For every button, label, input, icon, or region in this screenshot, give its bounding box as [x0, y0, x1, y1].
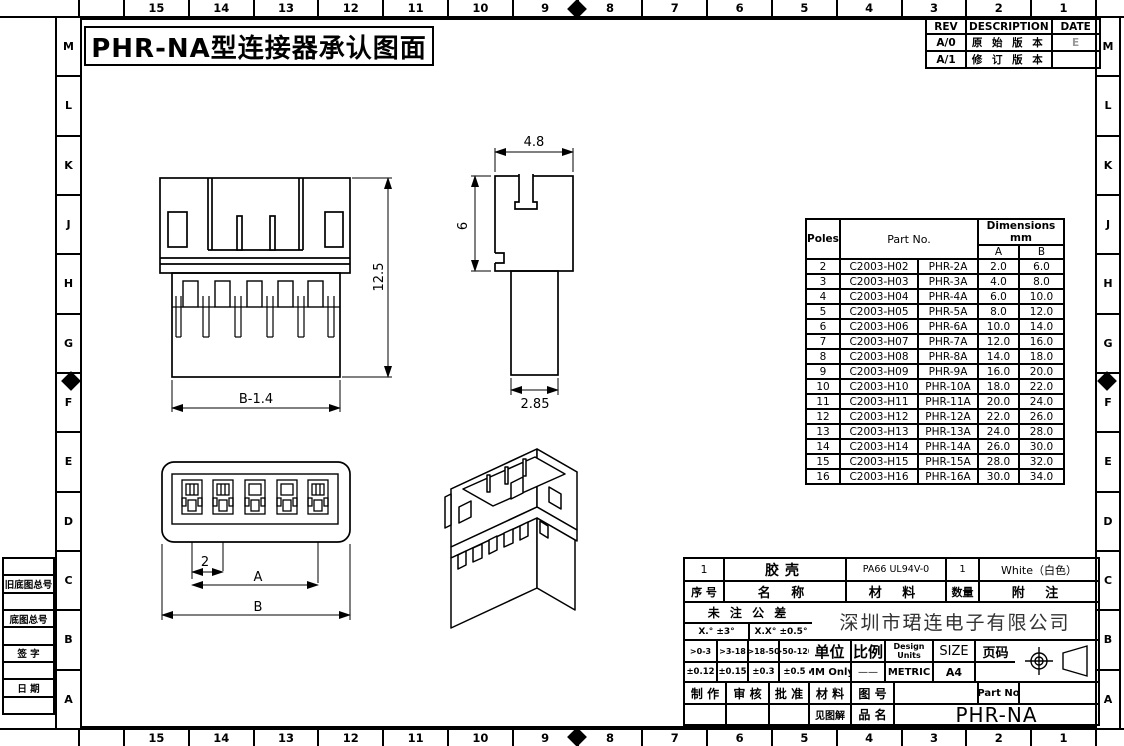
poles-cell: 12 — [806, 409, 840, 424]
projection-symbol-cell — [1015, 641, 1098, 681]
ruler-number: 3 — [903, 730, 968, 746]
margin-label — [4, 559, 53, 576]
dim-b-cell: 28.0 — [1019, 424, 1064, 439]
ruler-number: 14 — [190, 0, 255, 16]
parts-row: 13 C2003-H13 PHR-13A 24.0 28.0 — [806, 424, 1064, 439]
dim-a-cell: 10.0 — [978, 319, 1019, 334]
page-value — [974, 663, 1015, 681]
dim-b: B — [254, 600, 263, 615]
col-part-no: Part No. — [840, 219, 978, 259]
dim-a-cell: 24.0 — [978, 424, 1019, 439]
dim-b-cell: 10.0 — [1019, 289, 1064, 304]
size-label: SIZE — [932, 641, 974, 661]
ruler-number: 11 — [384, 0, 449, 16]
poles-cell: 2 — [806, 259, 840, 274]
poles-cell: 3 — [806, 274, 840, 289]
bom-qty: 1 — [945, 559, 978, 580]
zone-letter: C — [1097, 552, 1119, 611]
company-name: 深圳市珺连电子有限公司 — [812, 603, 1098, 639]
bom-header-name: 名 称 — [723, 582, 845, 601]
part-name-cell: PHR-2A — [918, 259, 978, 274]
tolerance-range: >18-50 — [747, 641, 778, 661]
dim-a-cell: 14.0 — [978, 349, 1019, 364]
zone-letter: D — [57, 493, 80, 552]
material-label: 材 料 — [808, 683, 850, 703]
parts-row: 14 C2003-H14 PHR-14A 26.0 30.0 — [806, 439, 1064, 454]
parts-row: 5 C2003-H05 PHR-5A 8.0 12.0 — [806, 304, 1064, 319]
ruler-corner — [80, 0, 125, 16]
margin-label-column: 旧底图总号底图总号签 字日 期 — [2, 557, 55, 715]
third-angle-projection-icon — [1017, 642, 1096, 680]
part-name-cell: PHR-7A — [918, 334, 978, 349]
approver-label: 批 准 — [768, 683, 808, 703]
rev-header: DATE — [1052, 19, 1100, 34]
zone-letter: G — [1097, 315, 1119, 374]
dim-b-cell: 14.0 — [1019, 319, 1064, 334]
poles-cell: 13 — [806, 424, 840, 439]
rev-desc: 修 订 版 本 — [966, 51, 1052, 68]
design-units-label: Design Units — [884, 641, 932, 661]
dim-b-cell: 34.0 — [1019, 469, 1064, 484]
zone-letter: B — [57, 611, 80, 670]
drawing-no-label: 图 号 — [850, 683, 893, 703]
maker-value — [685, 705, 725, 724]
poles-cell: 4 — [806, 289, 840, 304]
dim-b-cell: 16.0 — [1019, 334, 1064, 349]
ruler-number: 7 — [643, 730, 708, 746]
scale-label: 比例 — [850, 641, 884, 661]
poles-cell: 9 — [806, 364, 840, 379]
rev-value: A/0 — [926, 34, 966, 51]
ruler-number: 10 — [449, 0, 514, 16]
bom-name: 胶壳 — [723, 559, 845, 580]
margin-label: 签 字 — [4, 646, 53, 663]
poles-cell: 6 — [806, 319, 840, 334]
zone-letter: L — [57, 77, 80, 136]
dim-a-cell: 26.0 — [978, 439, 1019, 454]
col-dim-a: A — [978, 245, 1019, 259]
dim-b-cell: 20.0 — [1019, 364, 1064, 379]
zone-letter: K — [57, 137, 80, 196]
dim-b-cell: 18.0 — [1019, 349, 1064, 364]
zone-letter: H — [57, 255, 80, 314]
poles-cell: 5 — [806, 304, 840, 319]
ruler-corner — [80, 730, 125, 746]
dim-pitch: 2 — [201, 555, 209, 570]
tolerance-value: ±0.5 — [778, 663, 809, 681]
ruler-number: 10 — [449, 730, 514, 746]
part-name-cell: PHR-8A — [918, 349, 978, 364]
part-number-cell: C2003-H09 — [840, 364, 918, 379]
ruler-number: 1 — [1032, 0, 1097, 16]
part-number-cell: C2003-H11 — [840, 394, 918, 409]
part-name-cell: PHR-12A — [918, 409, 978, 424]
top-ruler: 151413121110987654321 — [0, 0, 1124, 18]
dim-side-height: 6 — [456, 222, 471, 230]
col-dimensions: Dimensions mm — [978, 219, 1064, 245]
parts-row: 6 C2003-H06 PHR-6A 10.0 14.0 — [806, 319, 1064, 334]
dim-b-cell: 26.0 — [1019, 409, 1064, 424]
dim-b-cell: 6.0 — [1019, 259, 1064, 274]
bom-header-note: 附 注 — [978, 582, 1098, 601]
ruler-number: 8 — [579, 730, 644, 746]
dim-a-cell: 18.0 — [978, 379, 1019, 394]
part-number-cell: C2003-H07 — [840, 334, 918, 349]
part-number-cell: C2003-H15 — [840, 454, 918, 469]
ruler-number: 13 — [255, 730, 320, 746]
rev-value: A/1 — [926, 51, 966, 68]
ruler-number: 6 — [708, 730, 773, 746]
approver-value — [768, 705, 808, 724]
part-name-cell: PHR-11A — [918, 394, 978, 409]
drawing-no-value — [893, 683, 977, 703]
poles-cell: 7 — [806, 334, 840, 349]
ruler-corner — [1097, 0, 1124, 16]
angle-tolerance-1: X.° ±3° — [685, 624, 748, 639]
title-block: 1 胶壳 PA66 UL94V-0 1 White（白色） 序 号 名 称 材 … — [683, 557, 1100, 726]
part-name-cell: PHR-16A — [918, 469, 978, 484]
zone-letter: M — [57, 18, 80, 77]
page-label: 页码 — [974, 641, 1015, 661]
rev-header: REV — [926, 19, 966, 34]
poles-cell: 14 — [806, 439, 840, 454]
tolerance-range: >3-18 — [716, 641, 747, 661]
part-name-cell: PHR-15A — [918, 454, 978, 469]
parts-row: 8 C2003-H08 PHR-8A 14.0 18.0 — [806, 349, 1064, 364]
ruler-number: 14 — [190, 730, 255, 746]
ruler-number: 4 — [838, 0, 903, 16]
ruler-number: 7 — [643, 0, 708, 16]
parts-row: 15 C2003-H15 PHR-15A 28.0 32.0 — [806, 454, 1064, 469]
tolerance-value: ±0.12 — [685, 663, 716, 681]
ruler-corner — [0, 730, 80, 746]
parts-row: 4 C2003-H04 PHR-4A 6.0 10.0 — [806, 289, 1064, 304]
margin-label — [4, 663, 53, 680]
bottom-ruler: 151413121110987654321 — [0, 728, 1124, 746]
zone-letter: H — [1097, 255, 1119, 314]
part-number-cell: C2003-H04 — [840, 289, 918, 304]
ruler-number: 12 — [319, 730, 384, 746]
ruler-corner — [0, 0, 80, 16]
sheet-title: PHR-NA型连接器承认图面 — [84, 26, 434, 66]
dim-a-cell: 12.0 — [978, 334, 1019, 349]
part-name-cell: PHR-14A — [918, 439, 978, 454]
bom-header-material: 材 料 — [845, 582, 945, 601]
ruler-number: 4 — [838, 730, 903, 746]
ruler-numbers: 151413121110987654321 — [125, 730, 1097, 746]
ruler-corner — [1097, 730, 1124, 746]
part-number-cell: C2003-H05 — [840, 304, 918, 319]
bom-note: White（白色） — [978, 559, 1098, 580]
zone-letter: A — [57, 671, 80, 728]
parts-row: 2 C2003-H02 PHR-2A 2.0 6.0 — [806, 259, 1064, 274]
ruler-numbers: 151413121110987654321 — [125, 0, 1097, 16]
part-number-cell: C2003-H08 — [840, 349, 918, 364]
part-no-value — [1018, 683, 1098, 703]
ruler-number: 8 — [579, 0, 644, 16]
part-number-cell: C2003-H13 — [840, 424, 918, 439]
untoleranced-label: 未 注 公 差 — [685, 603, 812, 622]
parts-row: 3 C2003-H03 PHR-3A 4.0 8.0 — [806, 274, 1064, 289]
dim-b-cell: 32.0 — [1019, 454, 1064, 469]
zone-letter: J — [1097, 196, 1119, 255]
unit-value: MM Only — [809, 663, 850, 681]
zone-letter: D — [1097, 493, 1119, 552]
dim-b-cell: 22.0 — [1019, 379, 1064, 394]
parts-row: 11 C2003-H11 PHR-11A 20.0 24.0 — [806, 394, 1064, 409]
ruler-number: 15 — [125, 0, 190, 16]
poles-cell: 8 — [806, 349, 840, 364]
product-name-label: 品 名 — [850, 705, 893, 724]
part-number-cell: C2003-H06 — [840, 319, 918, 334]
dim-front-width: B-1.4 — [239, 392, 273, 407]
parts-row: 10 C2003-H10 PHR-10A 18.0 22.0 — [806, 379, 1064, 394]
drawing-sheet: 151413121110987654321 151413121110987654… — [0, 0, 1124, 746]
dim-a-cell: 6.0 — [978, 289, 1019, 304]
part-number-cell: C2003-H03 — [840, 274, 918, 289]
col-dim-b: B — [1019, 245, 1064, 259]
margin-label: 旧底图总号 — [4, 576, 53, 593]
dim-b-cell: 30.0 — [1019, 439, 1064, 454]
zone-letter: E — [57, 433, 80, 492]
part-number-cell: C2003-H14 — [840, 439, 918, 454]
part-name-cell: PHR-9A — [918, 364, 978, 379]
poles-cell: 10 — [806, 379, 840, 394]
poles-cell: 16 — [806, 469, 840, 484]
parts-table: Poles Part No. Dimensions mm A B 2 C2003… — [805, 218, 1065, 485]
zone-letter: K — [1097, 137, 1119, 196]
zone-letter: B — [1097, 611, 1119, 670]
margin-label — [4, 628, 53, 645]
bom-header-qty: 数量 — [945, 582, 978, 601]
ruler-number: 2 — [967, 0, 1032, 16]
bom-no: 1 — [685, 559, 723, 580]
dim-a: A — [254, 570, 263, 585]
zone-letter: C — [57, 552, 80, 611]
dim-a-cell: 2.0 — [978, 259, 1019, 274]
ruler-number: 13 — [255, 0, 320, 16]
zone-letter: E — [1097, 433, 1119, 492]
zone-letter: A — [1097, 671, 1119, 728]
part-name-cell: PHR-5A — [918, 304, 978, 319]
dim-a-cell: 4.0 — [978, 274, 1019, 289]
dim-b-cell: 8.0 — [1019, 274, 1064, 289]
front-view: B-1.4 12.5 — [140, 160, 420, 416]
dim-side-stem: 2.85 — [521, 397, 550, 412]
unit-label: 单位 — [809, 641, 850, 661]
side-view: 4.8 6 2.85 — [458, 128, 613, 418]
col-poles: Poles — [806, 219, 840, 259]
checker-label: 审 核 — [725, 683, 768, 703]
part-name-cell: PHR-10A — [918, 379, 978, 394]
rev-date: E — [1052, 34, 1100, 51]
dim-a-cell: 20.0 — [978, 394, 1019, 409]
ruler-number: 12 — [319, 0, 384, 16]
rev-date — [1052, 51, 1100, 68]
part-number-cell: C2003-H16 — [840, 469, 918, 484]
parts-row: 9 C2003-H09 PHR-9A 16.0 20.0 — [806, 364, 1064, 379]
tolerance-value: ±0.15 — [716, 663, 747, 681]
parts-row: 16 C2003-H16 PHR-16A 30.0 34.0 — [806, 469, 1064, 484]
zone-letter: L — [1097, 77, 1119, 136]
dim-b-cell: 24.0 — [1019, 394, 1064, 409]
part-no-label: Part No — [977, 683, 1018, 703]
part-number-cell: C2003-H10 — [840, 379, 918, 394]
dim-b-cell: 12.0 — [1019, 304, 1064, 319]
dim-side-width: 4.8 — [524, 135, 545, 150]
zone-letter: G — [57, 315, 80, 374]
tolerance-value: ±0.3 — [747, 663, 778, 681]
ruler-number: 15 — [125, 730, 190, 746]
bom-material: PA66 UL94V-0 — [845, 559, 945, 580]
ruler-number: 3 — [903, 0, 968, 16]
parts-row: 12 C2003-H12 PHR-12A 22.0 26.0 — [806, 409, 1064, 424]
zone-letter: J — [57, 196, 80, 255]
dim-a-cell: 28.0 — [978, 454, 1019, 469]
maker-label: 制 作 — [685, 683, 725, 703]
poles-cell: 15 — [806, 454, 840, 469]
part-number-cell: C2003-H02 — [840, 259, 918, 274]
ruler-number: 5 — [773, 730, 838, 746]
ruler-number: 11 — [384, 730, 449, 746]
part-name-cell: PHR-13A — [918, 424, 978, 439]
product-name: PHR-NA — [893, 705, 1098, 724]
dim-a-cell: 22.0 — [978, 409, 1019, 424]
part-name-cell: PHR-3A — [918, 274, 978, 289]
dim-front-height: 12.5 — [372, 263, 387, 292]
margin-label: 日 期 — [4, 680, 53, 697]
angle-tolerance-2: X.X° ±0.5° — [748, 624, 812, 639]
margin-label — [4, 698, 53, 713]
dim-a-cell: 16.0 — [978, 364, 1019, 379]
checker-value — [725, 705, 768, 724]
bom-header-no: 序 号 — [685, 582, 723, 601]
margin-label: 底图总号 — [4, 611, 53, 628]
rev-header: DESCRIPTION — [966, 19, 1052, 34]
design-units-value: METRIC — [884, 663, 932, 681]
revision-table: REV DESCRIPTION DATE A/0 原 始 版 本 E A/1 修… — [925, 18, 1101, 69]
poles-cell: 11 — [806, 394, 840, 409]
see-note: 见图解 — [808, 705, 850, 724]
margin-label — [4, 594, 53, 611]
part-name-cell: PHR-6A — [918, 319, 978, 334]
dim-a-cell: 8.0 — [978, 304, 1019, 319]
ruler-number: 2 — [967, 730, 1032, 746]
size-value: A4 — [932, 663, 974, 681]
scale-value: —— — [850, 663, 884, 681]
ruler-number: 6 — [708, 0, 773, 16]
part-number-cell: C2003-H12 — [840, 409, 918, 424]
ruler-number: 1 — [1032, 730, 1097, 746]
part-name-cell: PHR-4A — [918, 289, 978, 304]
dim-a-cell: 30.0 — [978, 469, 1019, 484]
ruler-number: 5 — [773, 0, 838, 16]
tolerance-range: >0-3 — [685, 641, 716, 661]
bottom-view: 2 A B — [150, 452, 380, 630]
isometric-view — [437, 427, 607, 632]
tolerance-range: >50-120 — [778, 641, 809, 661]
rev-desc: 原 始 版 本 — [966, 34, 1052, 51]
parts-row: 7 C2003-H07 PHR-7A 12.0 16.0 — [806, 334, 1064, 349]
